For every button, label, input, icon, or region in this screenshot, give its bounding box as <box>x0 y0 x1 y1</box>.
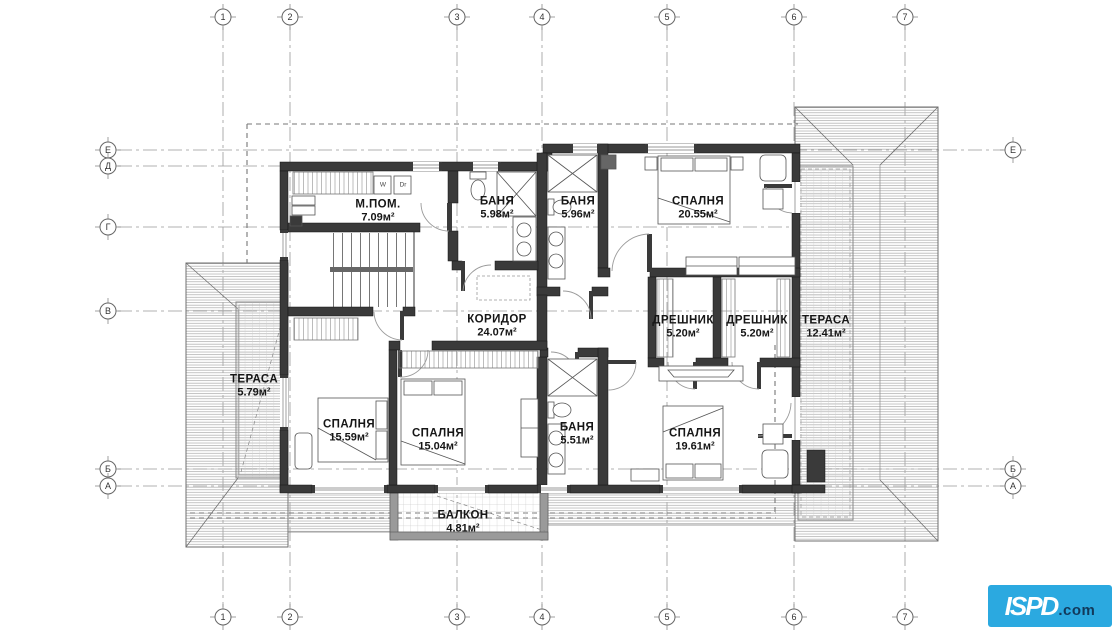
washer <box>374 176 391 194</box>
cabinet <box>601 155 616 169</box>
grid-bubble-label: Г <box>106 222 111 232</box>
cabinet-row <box>293 172 373 194</box>
grid-bubble: В <box>95 298 121 324</box>
grid-bubble: Е <box>1000 137 1026 163</box>
grid-bubble: А <box>1000 473 1026 499</box>
dresser <box>659 366 743 381</box>
grid-bubble: 4 <box>529 604 555 630</box>
wardrobe <box>294 318 358 340</box>
shelf <box>292 206 315 215</box>
terrace-door-glyph <box>792 182 800 213</box>
grid-bubble-label: 2 <box>287 12 292 22</box>
grid-bubble-label: 2 <box>287 612 292 622</box>
grid-bubble: 2 <box>277 4 303 30</box>
grid-bubble: 1 <box>210 4 236 30</box>
window-glyph <box>645 144 697 153</box>
grid-bubble: 2 <box>277 604 303 630</box>
grid-bubble-label: 7 <box>902 12 907 22</box>
grid-bubble-label: Б <box>105 464 111 474</box>
grid-bubble-label: Б <box>1010 464 1016 474</box>
wardrobe <box>657 279 673 357</box>
sink-counter <box>548 424 565 474</box>
grid-bubble: 3 <box>444 604 470 630</box>
brand-logo: ISPD .com <box>988 585 1112 627</box>
nightstand <box>645 157 657 170</box>
grid-bubble-label: 6 <box>791 12 796 22</box>
bed <box>401 379 465 465</box>
roof-left <box>186 263 288 547</box>
window-glyph <box>470 162 501 171</box>
grid-bubble-label: 5 <box>664 612 669 622</box>
window-glyph <box>410 162 442 171</box>
grid-bubble-label: Е <box>1010 145 1016 155</box>
balcony <box>390 493 548 540</box>
desk <box>521 399 538 457</box>
armchair <box>762 450 788 478</box>
grid-bubble: 5 <box>654 604 680 630</box>
grid-bubble-label: 6 <box>791 612 796 622</box>
grid-bubble-label: 3 <box>454 12 459 22</box>
grid-bubble: 6 <box>781 604 807 630</box>
wardrobe-row <box>686 257 795 275</box>
bed <box>658 156 730 224</box>
toilet <box>548 402 571 418</box>
dryer <box>394 176 411 194</box>
grid-bubble: 3 <box>444 4 470 30</box>
grid-bubble: 4 <box>529 4 555 30</box>
shower <box>548 155 597 192</box>
armchair <box>295 433 312 469</box>
wardrobe <box>777 279 790 357</box>
grid-bubble: 7 <box>892 4 918 30</box>
toilet <box>470 172 486 200</box>
stairs <box>330 232 414 307</box>
side-table <box>763 424 783 444</box>
sink-counter <box>548 227 565 279</box>
grid-bubble-label: 5 <box>664 12 669 22</box>
shower <box>548 359 597 396</box>
terrace-door-glyph <box>792 397 800 440</box>
duct <box>290 216 302 226</box>
grid-bubble-label: А <box>105 481 111 491</box>
grid-bubble-label: Д <box>105 161 111 171</box>
grid-bubble-label: А <box>1010 481 1016 491</box>
grid-bubble: 7 <box>892 604 918 630</box>
floor-plan-page: 11223344556677ЕЕДГВББАА <box>0 0 1120 632</box>
grid-bubble: Д <box>95 153 121 179</box>
grid-bubble-label: 7 <box>902 612 907 622</box>
logo-text: ISPD <box>1005 593 1058 619</box>
grid-bubble: 5 <box>654 4 680 30</box>
corridor-rug <box>477 276 530 300</box>
shelf <box>292 196 315 205</box>
grid-bubble: А <box>95 473 121 499</box>
armchair <box>760 155 786 181</box>
toilet <box>548 199 571 215</box>
bench <box>631 469 659 481</box>
bed <box>663 406 723 480</box>
floor-plan-drawing: 11223344556677ЕЕДГВББАА <box>0 0 1120 632</box>
grid-bubble: 6 <box>781 4 807 30</box>
side-table <box>763 189 783 209</box>
window-glyph <box>660 485 742 493</box>
window-glyph <box>570 144 600 153</box>
window-glyph <box>280 230 288 260</box>
balcony-door-glyph <box>435 485 488 493</box>
sink-counter <box>513 217 536 261</box>
window-glyph <box>538 485 570 493</box>
wardrobe-row <box>399 351 538 368</box>
logo-suffix: .com <box>1058 602 1095 619</box>
grid-bubble-label: 4 <box>539 612 544 622</box>
shower <box>497 172 536 216</box>
grid-bubble-label: 4 <box>539 12 544 22</box>
grid-bubble-label: 3 <box>454 612 459 622</box>
terrace-door-glyph <box>280 375 288 430</box>
nightstand <box>731 157 743 170</box>
window-glyph <box>312 485 387 493</box>
bed <box>318 398 388 462</box>
grid-bubble-label: В <box>105 306 111 316</box>
wardrobe <box>722 279 735 357</box>
grid-bubble-label: 1 <box>220 612 225 622</box>
grid-bubble: 1 <box>210 604 236 630</box>
grid-bubble-label: 1 <box>220 12 225 22</box>
grid-bubble: Г <box>95 214 121 240</box>
